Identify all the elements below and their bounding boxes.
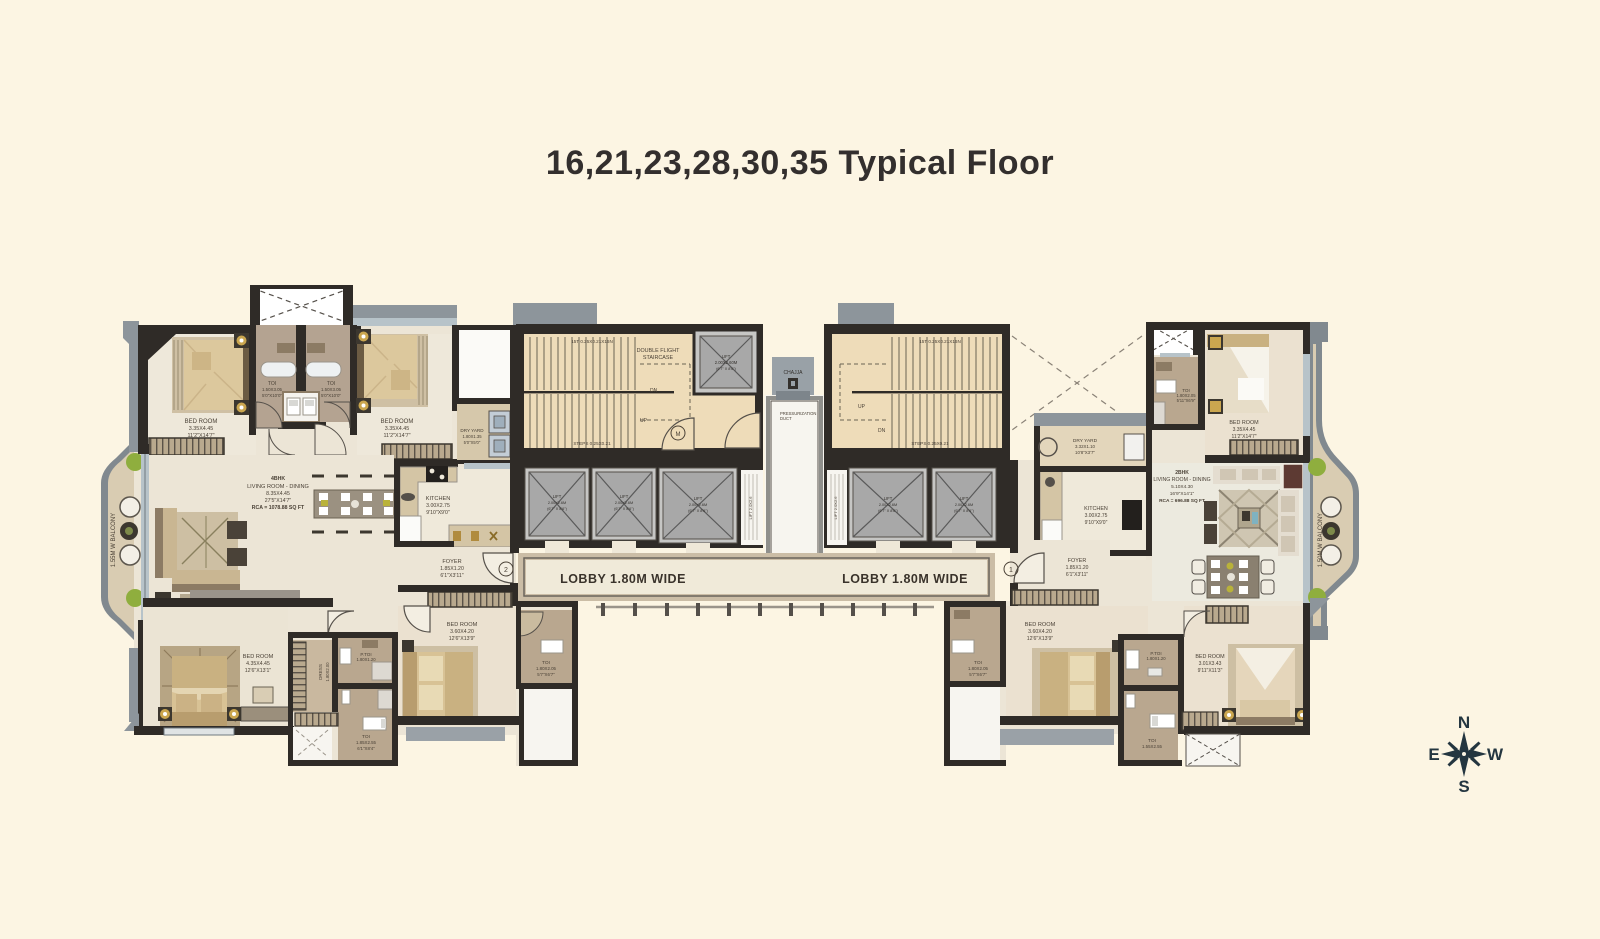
svg-text:W: W <box>1487 745 1504 764</box>
svg-text:BED ROOM: BED ROOM <box>185 419 218 425</box>
svg-text:3.01X3.43: 3.01X3.43 <box>1199 661 1222 667</box>
svg-text:12'6"X13'1": 12'6"X13'1" <box>245 668 272 674</box>
svg-text:LIFT: LIFT <box>620 494 629 499</box>
svg-text:3.35X4.45: 3.35X4.45 <box>189 426 214 432</box>
svg-text:1: 1 <box>1009 567 1013 574</box>
svg-text:3.60X4.20: 3.60X4.20 <box>450 629 474 635</box>
svg-text:3.32X1.10: 3.32X1.10 <box>1075 444 1096 449</box>
svg-text:LIFT 2.0X2.6: LIFT 2.0X2.6 <box>833 496 838 520</box>
svg-text:9'10"X9'0": 9'10"X9'0" <box>1085 520 1108 526</box>
svg-text:LOBBY 1.80M WIDE: LOBBY 1.80M WIDE <box>842 572 968 586</box>
svg-text:12'6"X13'9": 12'6"X13'9" <box>449 636 476 642</box>
svg-text:3.35X4.45: 3.35X4.45 <box>1233 427 1256 433</box>
svg-text:KITCHEN: KITCHEN <box>426 496 451 502</box>
svg-text:DN: DN <box>878 428 886 434</box>
svg-text:11'2"X14'7": 11'2"X14'7" <box>1231 434 1256 440</box>
svg-text:UP: UP <box>640 418 648 424</box>
svg-text:6'1"X8'4": 6'1"X8'4" <box>357 746 375 751</box>
svg-text:M: M <box>676 432 681 438</box>
svg-text:6'1"X3'11": 6'1"X3'11" <box>1066 572 1089 578</box>
svg-text:3.00X2.75: 3.00X2.75 <box>426 503 450 509</box>
svg-text:1.50M W BALCONY: 1.50M W BALCONY <box>1318 513 1324 567</box>
svg-text:12'6"X13'9": 12'6"X13'9" <box>1027 636 1054 642</box>
svg-text:STAIRCASE: STAIRCASE <box>643 355 674 361</box>
svg-text:5'7"X6'7": 5'7"X6'7" <box>969 672 987 677</box>
svg-text:BED ROOM: BED ROOM <box>381 419 414 425</box>
svg-text:LIFT: LIFT <box>553 494 562 499</box>
svg-text:11'2"X14'7": 11'2"X14'7" <box>383 433 410 439</box>
svg-text:5'0"X10'0": 5'0"X10'0" <box>262 393 282 398</box>
svg-text:STEPS 0.25X0.21: STEPS 0.25X0.21 <box>911 441 949 446</box>
svg-text:CHAJJA: CHAJJA <box>784 370 804 376</box>
svg-text:2BHK: 2BHK <box>1175 470 1189 476</box>
svg-text:10'8"X3'7": 10'8"X3'7" <box>1075 450 1095 455</box>
svg-text:N: N <box>1458 713 1470 732</box>
svg-text:KITCHEN: KITCHEN <box>1084 506 1108 512</box>
svg-text:DRY YARD: DRY YARD <box>460 428 484 433</box>
svg-text:1.80X1.20: 1.80X1.20 <box>356 657 376 662</box>
svg-text:FOYER: FOYER <box>442 559 461 565</box>
svg-text:S: S <box>1458 777 1469 796</box>
svg-text:9'11"X11'3": 9'11"X11'3" <box>1198 668 1223 674</box>
svg-text:E: E <box>1428 745 1439 764</box>
svg-text:2.00X2.6M: 2.00X2.6M <box>689 503 707 507</box>
svg-text:RCA = 696.88 SQ FT: RCA = 696.88 SQ FT <box>1159 498 1205 504</box>
svg-text:(6'7" X 8'6"): (6'7" X 8'6") <box>878 509 898 513</box>
svg-text:2.00X2.6M: 2.00X2.6M <box>615 501 633 505</box>
svg-text:FOYER: FOYER <box>1068 558 1087 564</box>
svg-text:15T 0.25X0.21X16N: 15T 0.25X0.21X16N <box>919 339 961 344</box>
svg-text:LIFT 2.0X2.6: LIFT 2.0X2.6 <box>748 496 753 520</box>
svg-text:DRESS: DRESS <box>318 664 323 680</box>
svg-text:5'11"X6'9": 5'11"X6'9" <box>1177 398 1196 403</box>
svg-text:2.00X2.60M: 2.00X2.60M <box>715 360 738 365</box>
svg-text:1.55X2.55: 1.55X2.55 <box>1142 744 1163 749</box>
svg-text:LIVING ROOM - DINING: LIVING ROOM - DINING <box>247 484 309 490</box>
svg-text:LIFT: LIFT <box>884 496 893 501</box>
svg-text:5'0"X10'0": 5'0"X10'0" <box>321 393 341 398</box>
svg-text:6'1"X3'11": 6'1"X3'11" <box>440 573 463 579</box>
svg-text:1.55M W BALCONY: 1.55M W BALCONY <box>111 513 117 567</box>
svg-text:3.35X4.45: 3.35X4.45 <box>385 426 410 432</box>
svg-text:DOUBLE FLIGHT: DOUBLE FLIGHT <box>637 348 681 354</box>
svg-text:2.00X2.6M: 2.00X2.6M <box>548 501 566 505</box>
svg-text:1.50X3.05: 1.50X3.05 <box>262 387 283 392</box>
svg-text:LIVING ROOM - DINING: LIVING ROOM - DINING <box>1153 477 1210 483</box>
svg-text:4BHK: 4BHK <box>271 476 285 482</box>
svg-text:1.80X2.00: 1.80X2.00 <box>325 662 330 682</box>
svg-text:5'0"X5'0": 5'0"X5'0" <box>464 440 481 445</box>
svg-text:STEPS 0.25X0.21: STEPS 0.25X0.21 <box>573 441 611 446</box>
svg-text:(6'7" X 8'6"): (6'7" X 8'6") <box>954 509 974 513</box>
svg-text:1.80X1.20: 1.80X1.20 <box>1146 656 1166 661</box>
svg-text:9'10"X9'0": 9'10"X9'0" <box>426 510 450 516</box>
svg-text:16'9"X14'1": 16'9"X14'1" <box>1170 491 1195 497</box>
svg-text:BED ROOM: BED ROOM <box>1025 622 1056 628</box>
svg-text:BED ROOM: BED ROOM <box>243 654 274 660</box>
svg-text:RCA = 1078.88 SQ FT: RCA = 1078.88 SQ FT <box>252 505 305 511</box>
svg-text:DUCT: DUCT <box>780 416 792 421</box>
svg-text:1.80X2.05: 1.80X2.05 <box>536 666 557 671</box>
svg-text:3.60X4.20: 3.60X4.20 <box>1028 629 1052 635</box>
svg-text:(6'7" X 8'6"): (6'7" X 8'6") <box>614 507 634 511</box>
svg-text:LIFT: LIFT <box>960 496 969 501</box>
svg-text:UP: UP <box>858 404 866 410</box>
svg-text:(6'7" X 8'6"): (6'7" X 8'6") <box>716 367 736 371</box>
svg-text:LIFT: LIFT <box>694 496 703 501</box>
svg-text:2: 2 <box>504 567 508 574</box>
svg-text:LIFT: LIFT <box>722 354 731 359</box>
svg-text:LOBBY 1.80M WIDE: LOBBY 1.80M WIDE <box>560 572 686 586</box>
svg-text:1.85X1.20: 1.85X1.20 <box>440 566 464 572</box>
svg-text:3.00X2.75: 3.00X2.75 <box>1085 513 1108 519</box>
svg-text:15T 0.25X0.21X16N: 15T 0.25X0.21X16N <box>571 339 613 344</box>
svg-text:DN: DN <box>650 388 658 394</box>
svg-text:1.85X1.20: 1.85X1.20 <box>1066 565 1089 571</box>
svg-text:16,21,23,28,30,35 Typical Floo: 16,21,23,28,30,35 Typical Floor <box>546 144 1054 182</box>
svg-text:4.35X4.45: 4.35X4.45 <box>246 661 270 667</box>
svg-text:BED ROOM: BED ROOM <box>447 622 478 628</box>
svg-text:1.50X3.05: 1.50X3.05 <box>321 387 342 392</box>
svg-text:(6'7" X 8'6"): (6'7" X 8'6") <box>547 507 567 511</box>
svg-text:5.10X4.30: 5.10X4.30 <box>1171 484 1193 490</box>
svg-text:(6'7" X 8'6"): (6'7" X 8'6") <box>688 509 708 513</box>
svg-text:2.00X2.6M: 2.00X2.6M <box>955 503 973 507</box>
svg-text:8.35X4.45: 8.35X4.45 <box>266 491 290 497</box>
svg-text:2.00X2.6M: 2.00X2.6M <box>879 503 897 507</box>
svg-text:27'5"X14'7": 27'5"X14'7" <box>265 498 292 504</box>
svg-text:1.80X2.05: 1.80X2.05 <box>968 666 989 671</box>
svg-text:BED ROOM: BED ROOM <box>1229 420 1259 426</box>
svg-text:5'7"X6'7": 5'7"X6'7" <box>537 672 555 677</box>
svg-text:1.80X1.35: 1.80X1.35 <box>462 434 482 439</box>
svg-text:BED ROOM: BED ROOM <box>1195 654 1225 660</box>
svg-text:1.85X2.55: 1.85X2.55 <box>356 740 377 745</box>
